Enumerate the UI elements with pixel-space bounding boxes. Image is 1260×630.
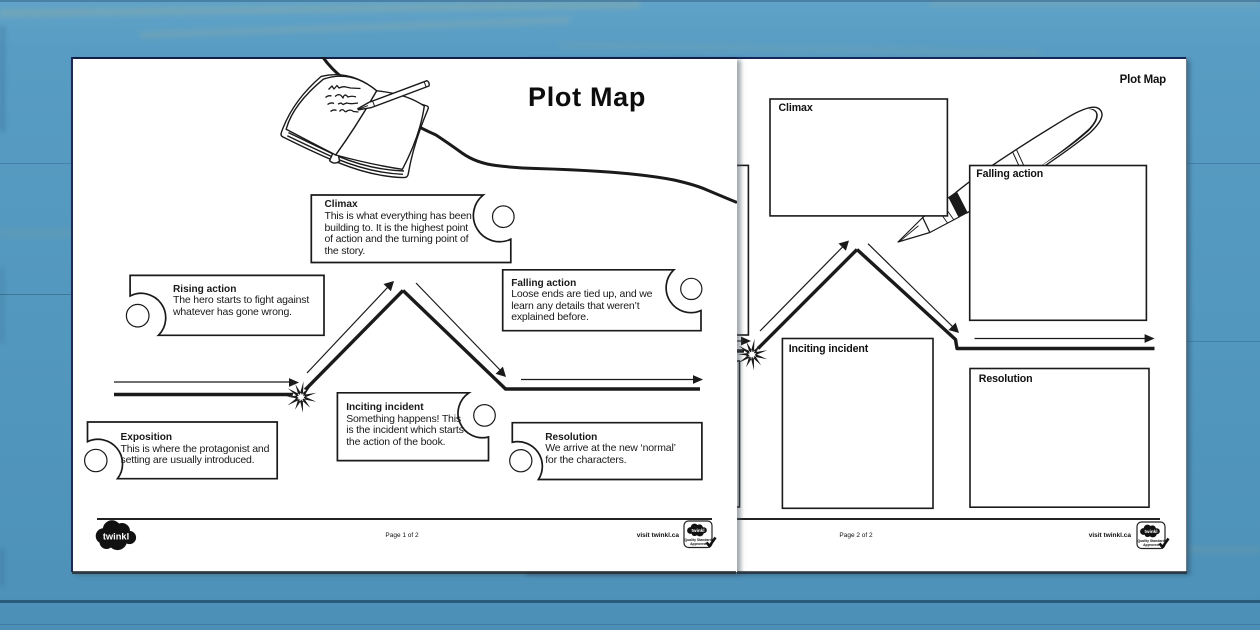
svg-text:twinkl: twinkl bbox=[691, 528, 704, 533]
svg-text:Quality Standard: Quality Standard bbox=[684, 538, 711, 542]
svg-text:twinkl: twinkl bbox=[1144, 529, 1157, 534]
svg-text:twinkl: twinkl bbox=[103, 532, 129, 542]
svg-text:Approved: Approved bbox=[1143, 543, 1159, 547]
svg-text:Quality Standard: Quality Standard bbox=[1137, 539, 1164, 543]
svg-text:Approved: Approved bbox=[690, 542, 706, 546]
